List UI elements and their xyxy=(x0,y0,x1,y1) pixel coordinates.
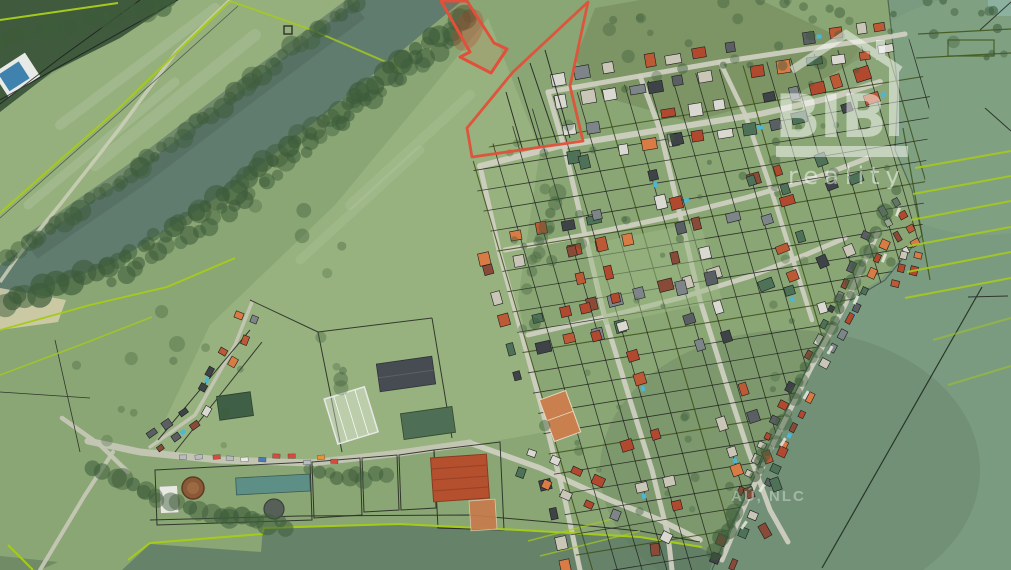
tree xyxy=(45,223,57,235)
brand-text: BIB xyxy=(775,82,886,152)
car xyxy=(241,457,249,462)
tree xyxy=(636,14,644,22)
tree xyxy=(676,235,684,243)
tree xyxy=(322,268,332,278)
pool xyxy=(758,125,764,130)
tree xyxy=(350,99,364,113)
house xyxy=(897,264,905,273)
tree xyxy=(334,380,349,395)
tree xyxy=(1000,50,1007,57)
tree xyxy=(574,440,580,446)
tree xyxy=(886,257,896,267)
brand-tagline: reality xyxy=(788,162,906,190)
house-roof xyxy=(671,500,682,511)
car xyxy=(273,454,281,459)
tree xyxy=(890,11,897,18)
house xyxy=(856,22,867,34)
tree xyxy=(664,490,670,496)
car xyxy=(195,454,203,459)
tree xyxy=(854,67,860,73)
tree xyxy=(220,408,230,418)
car xyxy=(288,454,295,459)
house-roof xyxy=(602,88,617,102)
pool-hall xyxy=(236,474,311,495)
tree xyxy=(891,198,900,207)
tree xyxy=(589,146,596,153)
house xyxy=(513,254,525,267)
tree xyxy=(769,301,777,309)
tree xyxy=(546,255,557,266)
house-roof xyxy=(688,103,703,118)
tree xyxy=(112,179,125,192)
house-roof xyxy=(697,70,712,83)
house xyxy=(699,246,712,260)
house xyxy=(672,75,684,86)
tree xyxy=(647,30,654,37)
tree xyxy=(826,5,834,13)
map-viewport[interactable]: BIB reality AÚ, NLC xyxy=(0,0,1011,570)
tree xyxy=(881,216,892,227)
tree xyxy=(545,208,555,218)
tree xyxy=(169,494,185,510)
house-roof xyxy=(602,62,615,74)
tree xyxy=(846,291,854,299)
house xyxy=(692,47,707,59)
tree xyxy=(866,235,874,243)
tree xyxy=(295,229,310,244)
tree xyxy=(951,8,959,16)
tree xyxy=(681,411,690,420)
house xyxy=(831,54,846,65)
car xyxy=(303,460,311,465)
house-roof xyxy=(610,293,620,304)
tree xyxy=(807,353,818,364)
house-roof xyxy=(591,209,602,220)
house-roof xyxy=(586,121,600,134)
tree xyxy=(540,184,551,195)
tree xyxy=(788,393,801,406)
tree xyxy=(101,435,113,447)
tree xyxy=(697,194,702,199)
house-roof xyxy=(555,536,568,551)
red-warehouse xyxy=(431,454,490,502)
house-roof xyxy=(669,196,684,211)
house-roof xyxy=(914,252,923,260)
tree xyxy=(546,225,554,233)
tree xyxy=(576,238,587,249)
tree xyxy=(169,336,185,352)
tree xyxy=(993,24,1002,33)
tree xyxy=(521,283,532,294)
tree xyxy=(781,255,790,264)
pool xyxy=(816,34,822,39)
tree xyxy=(864,244,878,258)
tree xyxy=(789,318,795,324)
tree xyxy=(237,366,244,373)
house xyxy=(873,22,885,32)
satellite-map[interactable]: BIB reality AÚ, NLC xyxy=(0,0,1011,570)
tree xyxy=(808,15,817,24)
house xyxy=(725,42,735,53)
tree xyxy=(834,7,845,18)
tree xyxy=(778,61,788,71)
tree xyxy=(706,543,723,560)
tree xyxy=(929,29,939,39)
car xyxy=(226,456,234,461)
house-roof xyxy=(856,22,867,34)
tree xyxy=(329,11,340,22)
tree xyxy=(609,16,617,24)
tree xyxy=(421,37,434,50)
tree xyxy=(339,367,347,375)
house-roof xyxy=(579,302,591,314)
house-roof xyxy=(580,89,596,105)
house xyxy=(602,62,615,74)
house-roof xyxy=(561,219,575,231)
tree xyxy=(296,203,311,218)
house-roof xyxy=(573,65,590,80)
tree xyxy=(276,152,295,171)
tree xyxy=(125,352,138,365)
tree xyxy=(635,507,643,515)
tree xyxy=(984,54,990,60)
tree xyxy=(145,250,159,264)
tree xyxy=(584,369,591,376)
house xyxy=(688,103,703,118)
house xyxy=(622,233,634,246)
house xyxy=(555,536,568,551)
tree xyxy=(660,253,665,258)
house-roof xyxy=(742,122,757,136)
tree xyxy=(685,436,692,443)
house xyxy=(573,65,590,80)
tree xyxy=(800,362,811,373)
tree xyxy=(596,467,602,473)
tree xyxy=(689,506,695,512)
tree xyxy=(850,260,866,276)
house xyxy=(899,251,907,260)
tree xyxy=(622,50,635,63)
house xyxy=(618,144,629,156)
tree xyxy=(825,321,839,335)
tree xyxy=(156,142,167,153)
house-roof xyxy=(725,42,735,53)
tree xyxy=(720,62,727,69)
tree xyxy=(749,471,760,482)
tree xyxy=(616,404,621,409)
house xyxy=(697,70,712,83)
tree xyxy=(277,49,288,60)
house-roof xyxy=(559,306,571,318)
house xyxy=(671,500,682,511)
house-roof xyxy=(550,73,566,87)
tree xyxy=(691,473,700,482)
tree xyxy=(834,304,845,315)
house xyxy=(713,99,725,111)
tree xyxy=(511,236,518,243)
tree xyxy=(603,23,616,36)
house xyxy=(591,209,602,220)
tree xyxy=(304,464,315,475)
tree xyxy=(887,28,893,34)
house-roof xyxy=(559,559,571,570)
brand-underline xyxy=(776,146,908,157)
tree xyxy=(746,62,753,69)
tree xyxy=(845,17,853,25)
tree xyxy=(770,386,776,392)
house-roof xyxy=(691,130,704,142)
tree xyxy=(174,236,187,249)
tree xyxy=(259,177,270,188)
tree xyxy=(388,71,404,87)
tree xyxy=(277,521,293,537)
house xyxy=(650,543,660,556)
tree xyxy=(771,184,779,192)
tree xyxy=(774,190,781,197)
tree xyxy=(315,332,326,343)
house xyxy=(691,130,704,142)
tree xyxy=(118,406,125,413)
tree xyxy=(539,420,550,431)
house-roof xyxy=(648,169,659,181)
tree xyxy=(530,252,541,263)
tree xyxy=(988,50,995,57)
house xyxy=(580,89,596,105)
house-roof xyxy=(699,246,712,260)
car xyxy=(331,459,338,463)
tree xyxy=(621,216,627,222)
house xyxy=(566,245,577,257)
house xyxy=(550,73,566,87)
tree xyxy=(106,277,116,287)
tree xyxy=(249,199,263,213)
tree xyxy=(774,41,783,50)
tree xyxy=(816,333,830,347)
house-roof xyxy=(566,245,577,257)
tree xyxy=(301,147,312,158)
tree xyxy=(518,324,527,333)
tree xyxy=(795,374,809,388)
tree xyxy=(221,442,227,448)
tree xyxy=(521,243,528,250)
tree xyxy=(806,31,816,41)
tree xyxy=(534,237,545,248)
clay-court xyxy=(469,499,497,531)
tree xyxy=(155,305,168,318)
tree xyxy=(201,343,210,352)
house xyxy=(610,293,620,304)
tree xyxy=(739,172,747,180)
house xyxy=(644,53,656,68)
house xyxy=(641,137,657,150)
house-roof xyxy=(641,137,657,150)
brown-tank-dome xyxy=(187,482,199,494)
tree xyxy=(799,2,808,11)
house xyxy=(559,306,571,318)
tree xyxy=(529,318,541,330)
house xyxy=(602,88,617,102)
car xyxy=(213,454,221,459)
tree xyxy=(707,160,712,165)
tree xyxy=(730,54,740,64)
tree xyxy=(169,357,177,365)
tree xyxy=(770,372,780,382)
tree xyxy=(799,256,808,265)
house-roof xyxy=(513,254,525,267)
house xyxy=(647,80,663,94)
house xyxy=(561,219,575,231)
tree xyxy=(633,297,640,304)
house xyxy=(586,121,600,134)
tree xyxy=(313,466,326,479)
house-roof xyxy=(644,53,656,68)
tree xyxy=(665,132,675,142)
house-roof xyxy=(897,264,905,273)
tree xyxy=(621,86,628,93)
car xyxy=(317,455,325,460)
tree xyxy=(563,120,574,131)
tree xyxy=(947,36,960,49)
tree xyxy=(130,409,138,417)
tree xyxy=(257,514,279,536)
house-roof xyxy=(647,80,663,94)
car xyxy=(179,455,186,460)
house-roof xyxy=(622,233,634,246)
house-roof xyxy=(618,144,629,156)
house-roof xyxy=(650,543,660,556)
tree xyxy=(379,468,394,483)
house-roof xyxy=(899,251,907,260)
tree xyxy=(527,266,538,277)
tree xyxy=(575,210,584,219)
tree xyxy=(138,240,151,253)
tree xyxy=(732,13,743,24)
tree xyxy=(685,39,693,47)
map-attribution: AÚ, NLC xyxy=(731,487,806,505)
house-roof xyxy=(831,54,846,65)
house xyxy=(914,252,923,260)
house xyxy=(559,559,571,570)
tree xyxy=(539,149,548,158)
tree xyxy=(15,24,31,40)
house-roof xyxy=(692,47,707,59)
house-roof xyxy=(713,99,725,111)
tree xyxy=(118,266,136,284)
house-roof xyxy=(873,22,885,32)
tree xyxy=(72,361,81,370)
tree xyxy=(845,274,862,291)
tree xyxy=(337,242,346,251)
tree xyxy=(651,71,662,82)
tree xyxy=(401,58,419,76)
tree xyxy=(677,63,688,74)
tree xyxy=(660,303,665,308)
tree xyxy=(574,446,584,456)
house xyxy=(579,302,591,314)
car xyxy=(258,457,266,462)
house-roof xyxy=(672,75,684,86)
tree xyxy=(978,10,985,17)
tree xyxy=(985,6,995,16)
